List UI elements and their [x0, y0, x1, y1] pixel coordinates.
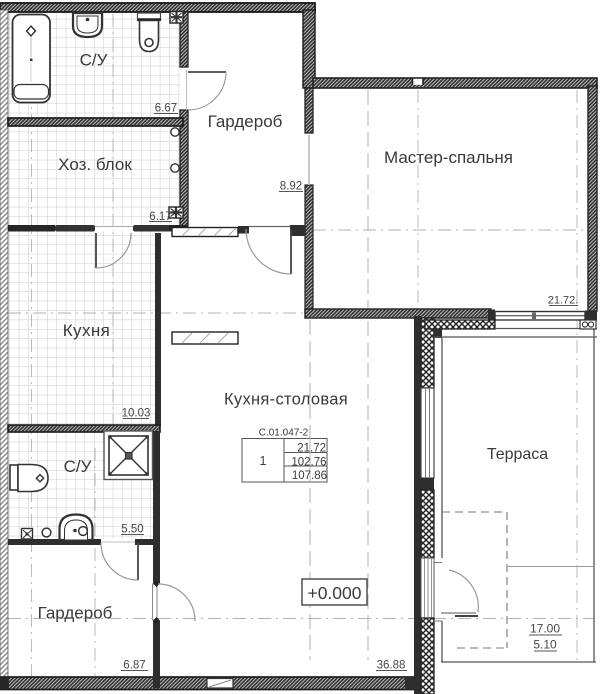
svg-text:107.86: 107.86: [292, 470, 327, 482]
svg-text:Кухня-столовая: Кухня-столовая: [224, 391, 348, 409]
svg-text:17.00: 17.00: [530, 622, 560, 636]
svg-text:8.92: 8.92: [280, 181, 302, 193]
svg-text:Гардероб: Гардероб: [208, 112, 283, 131]
svg-text:10.03: 10.03: [122, 408, 151, 420]
svg-text:36.88: 36.88: [377, 660, 406, 672]
svg-text:+0.000: +0.000: [307, 583, 361, 603]
svg-text:6.87: 6.87: [123, 660, 145, 672]
svg-text:5.10: 5.10: [533, 638, 557, 652]
svg-text:21.72.: 21.72.: [548, 295, 579, 307]
svg-text:21.72: 21.72: [297, 443, 326, 455]
svg-text:С/У: С/У: [80, 51, 108, 70]
svg-text:Гардероб: Гардероб: [38, 604, 113, 623]
svg-text:5.50: 5.50: [121, 524, 143, 536]
svg-text:102.76: 102.76: [291, 456, 326, 468]
svg-text:С/У: С/У: [64, 457, 92, 476]
svg-text:1: 1: [260, 454, 267, 468]
svg-text:С.01.047-2: С.01.047-2: [259, 428, 309, 439]
svg-text:Кухня: Кухня: [63, 321, 111, 340]
svg-text:6.67: 6.67: [155, 103, 177, 115]
svg-text:Хоз. блок: Хоз. блок: [58, 155, 132, 174]
svg-text:Терраса: Терраса: [487, 446, 548, 463]
svg-text:Мастер-спальня: Мастер-спальня: [384, 148, 513, 167]
